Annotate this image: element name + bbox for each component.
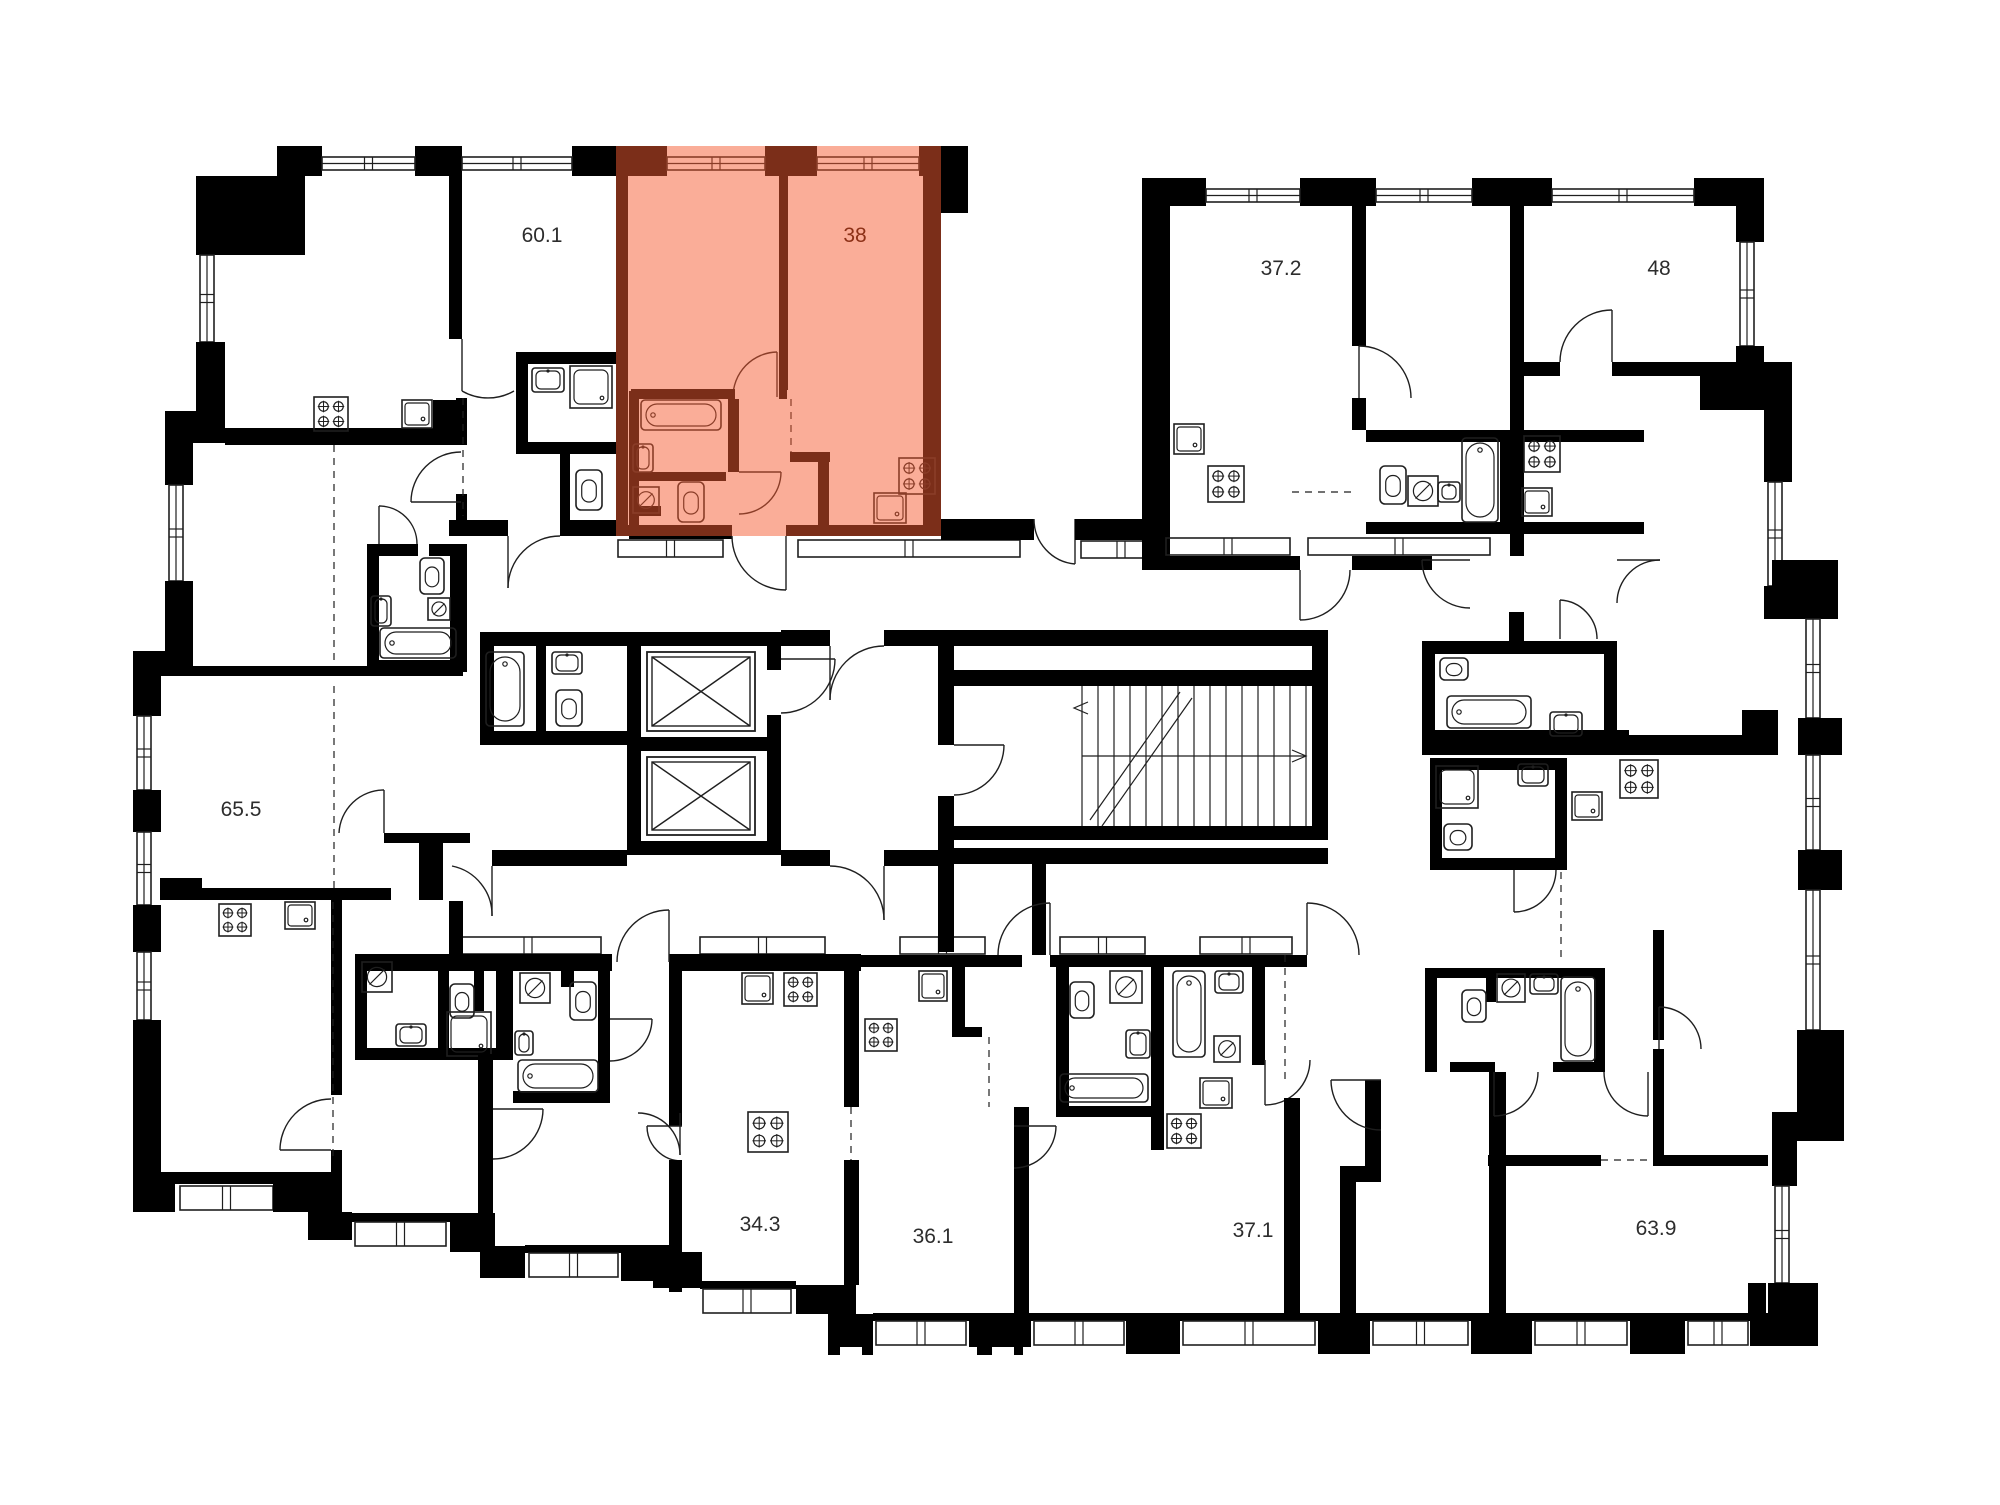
svg-text:37.1: 37.1 bbox=[1233, 1219, 1274, 1242]
svg-text:63.9: 63.9 bbox=[1636, 1217, 1677, 1240]
svg-text:48: 48 bbox=[1647, 257, 1670, 280]
svg-text:37.2: 37.2 bbox=[1261, 257, 1302, 280]
svg-text:65.5: 65.5 bbox=[221, 798, 262, 821]
svg-text:60.1: 60.1 bbox=[522, 224, 563, 247]
svg-text:34.3: 34.3 bbox=[740, 1213, 781, 1236]
svg-text:38: 38 bbox=[843, 224, 866, 247]
svg-text:36.1: 36.1 bbox=[913, 1225, 954, 1248]
